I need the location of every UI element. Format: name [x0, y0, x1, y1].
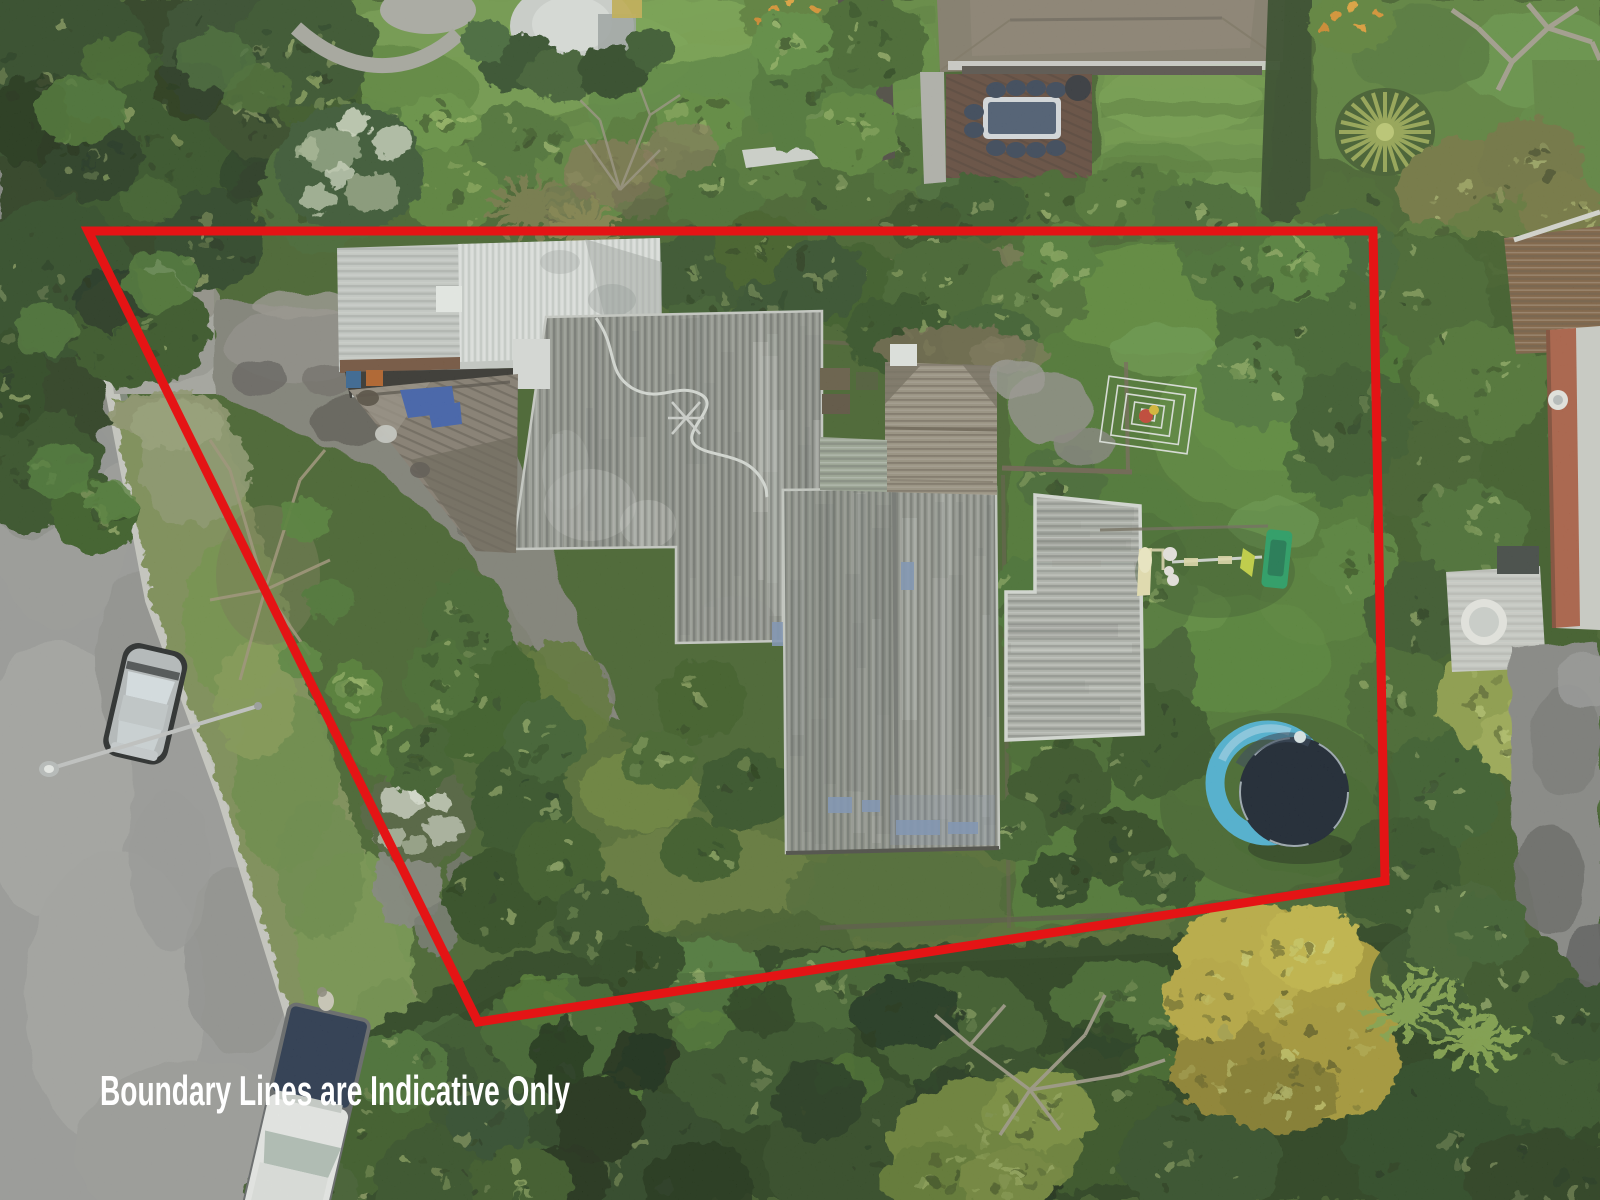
- svg-text:Boundary Lines are Indicative: Boundary Lines are Indicative Only: [100, 1067, 570, 1114]
